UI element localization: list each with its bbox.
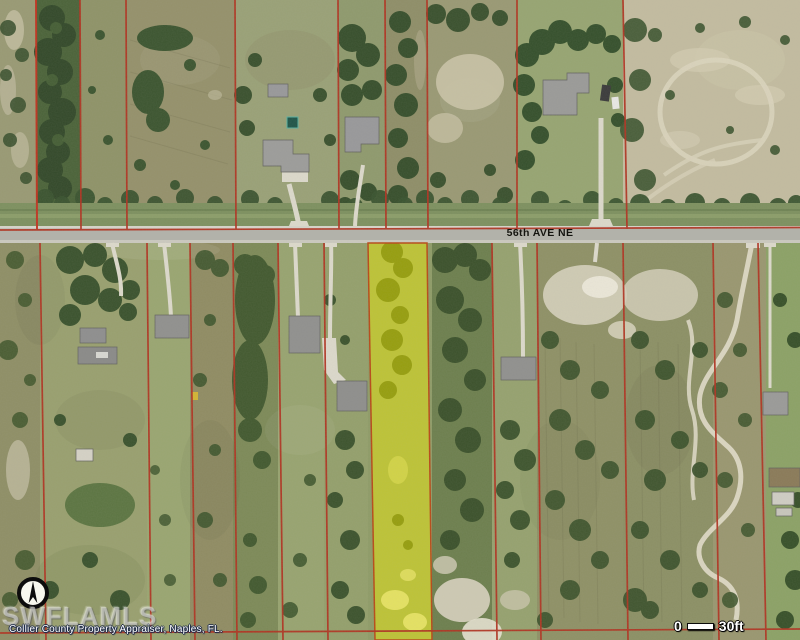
photo-grain xyxy=(0,0,800,640)
street-label: 56th AVE NE xyxy=(480,227,600,239)
aerial-imagery xyxy=(0,0,800,640)
attribution-text: Collier County Property Appraiser, Naple… xyxy=(9,624,223,635)
north-arrow-icon xyxy=(26,581,41,603)
aerial-parcel-map: 56th AVE NE SWFLAMLS Collier County Prop… xyxy=(0,0,800,640)
scale-segment xyxy=(687,623,714,630)
scale-start-label: 0 xyxy=(674,618,682,634)
scale-bar: 0 30ft xyxy=(674,618,744,634)
scale-end-label: 30ft xyxy=(719,618,744,634)
